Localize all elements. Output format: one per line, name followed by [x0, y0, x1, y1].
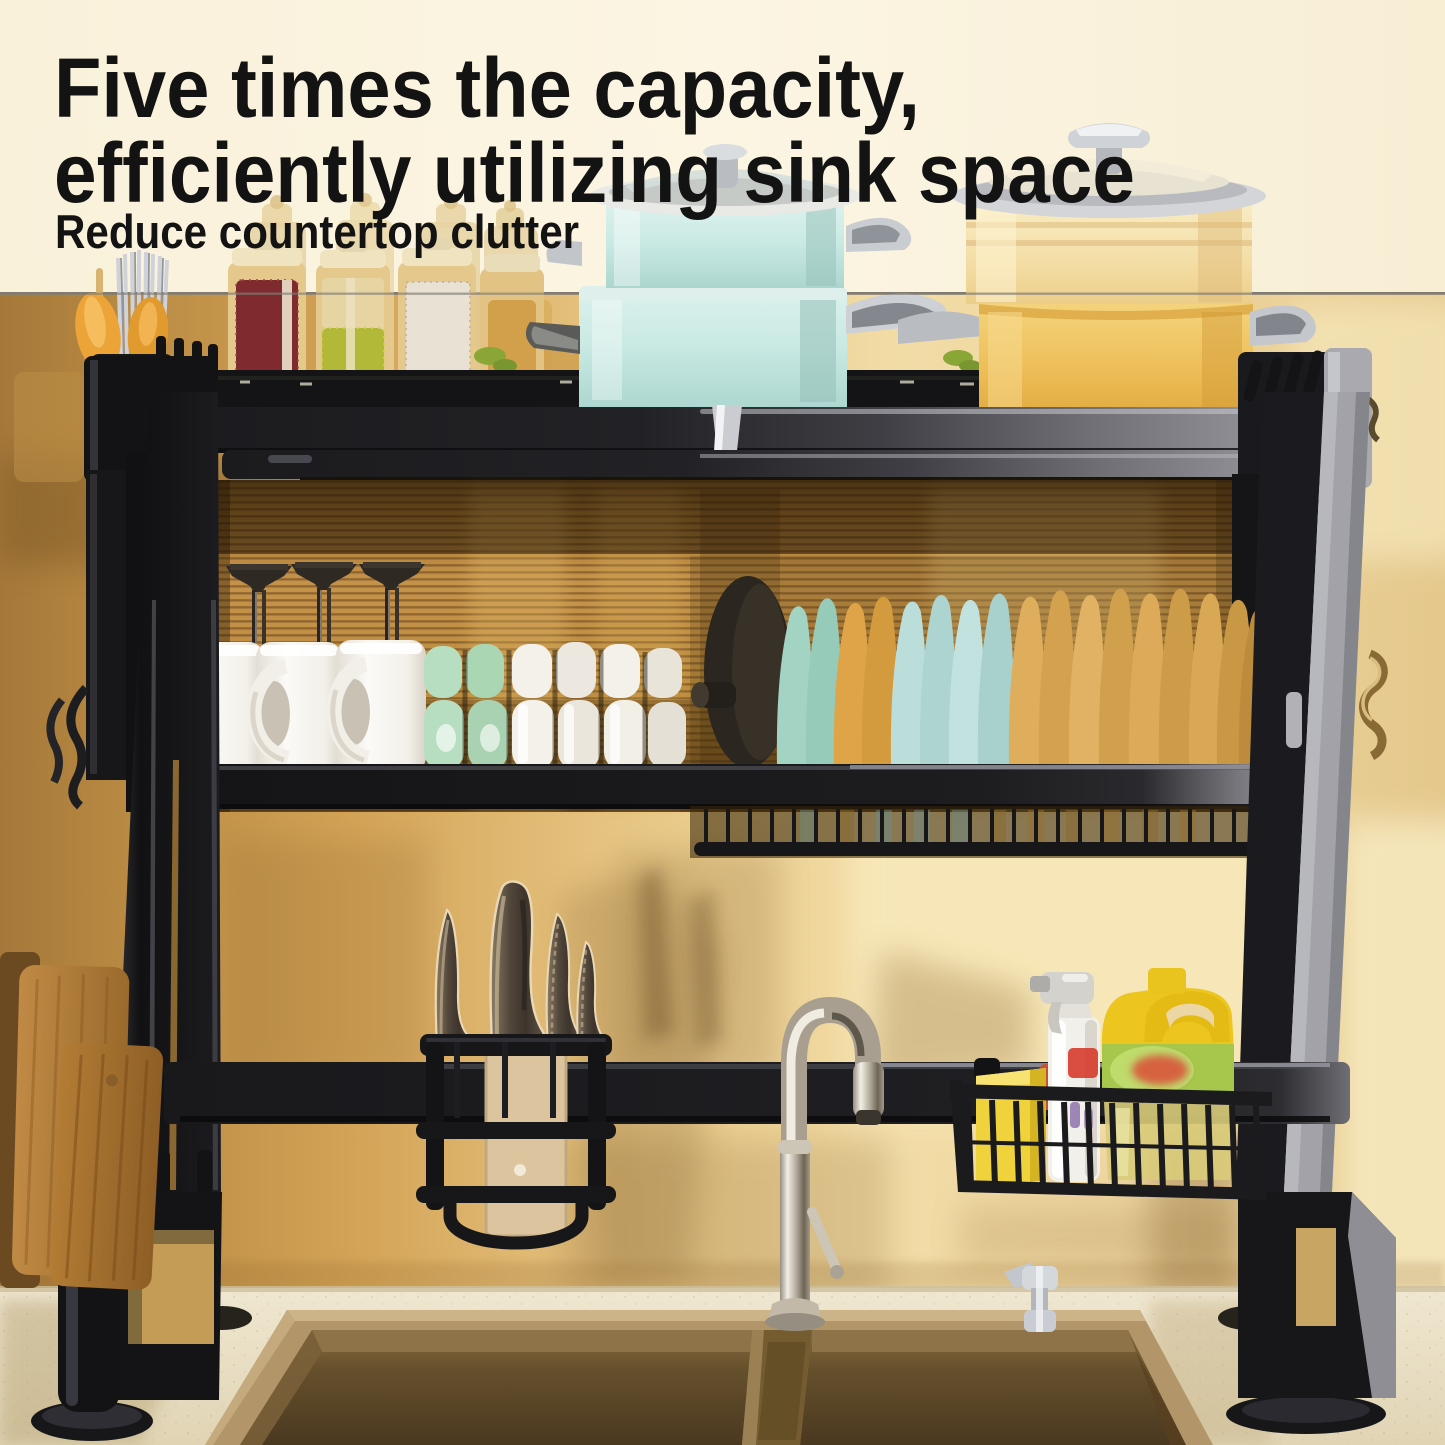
svg-text:Five times the capacity,: Five times the capacity, — [54, 41, 920, 135]
svg-text:Reduce countertop clutter: Reduce countertop clutter — [55, 205, 579, 258]
